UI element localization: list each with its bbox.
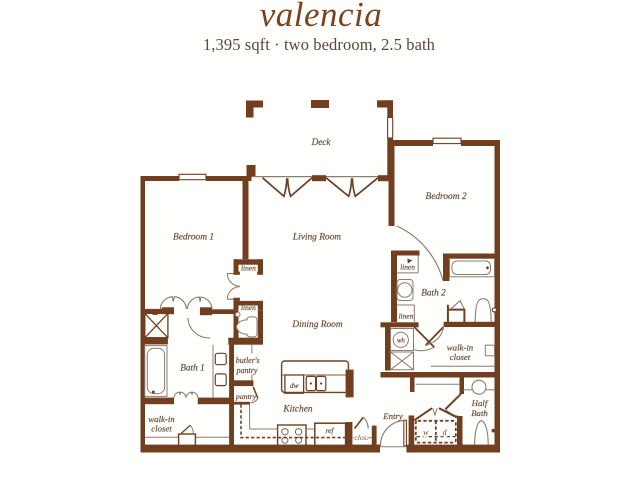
svg-text:closet: closet	[151, 424, 172, 434]
svg-text:Bedroom 2: Bedroom 2	[425, 192, 466, 202]
svg-text:ref: ref	[326, 426, 335, 435]
svg-text:valencia: valencia	[260, 0, 383, 34]
svg-text:closet: closet	[450, 352, 471, 362]
svg-text:Living Room: Living Room	[292, 233, 341, 243]
svg-text:Bath: Bath	[471, 408, 488, 418]
svg-text:Half: Half	[471, 398, 489, 408]
svg-text:pantry: pantry	[235, 392, 257, 401]
svg-text:Deck: Deck	[311, 137, 332, 147]
svg-text:pantry: pantry	[236, 366, 258, 375]
svg-text:clos.: clos.	[354, 433, 368, 442]
svg-text:linen: linen	[399, 312, 414, 321]
svg-text:Bath 1: Bath 1	[180, 364, 205, 374]
svg-text:w: w	[423, 428, 429, 437]
svg-text:Entry: Entry	[382, 411, 403, 421]
svg-text:wh: wh	[397, 338, 406, 345]
svg-text:1,395 sqft · two bedroom, 2.5: 1,395 sqft · two bedroom, 2.5 bath	[203, 35, 436, 54]
svg-text:Dining Room: Dining Room	[291, 320, 342, 330]
svg-text:dw: dw	[290, 381, 299, 390]
svg-text:d: d	[443, 428, 448, 437]
svg-text:walk-in: walk-in	[148, 414, 175, 424]
svg-text:Kitchen: Kitchen	[282, 405, 312, 415]
svg-text:linen: linen	[241, 264, 256, 273]
svg-text:Bath 2: Bath 2	[421, 289, 446, 299]
svg-text:walk-in: walk-in	[447, 343, 474, 353]
svg-text:linen: linen	[241, 303, 256, 312]
svg-text:linen: linen	[400, 263, 415, 272]
svg-text:butler's: butler's	[236, 356, 260, 365]
svg-text:Bedroom 1: Bedroom 1	[173, 233, 214, 243]
